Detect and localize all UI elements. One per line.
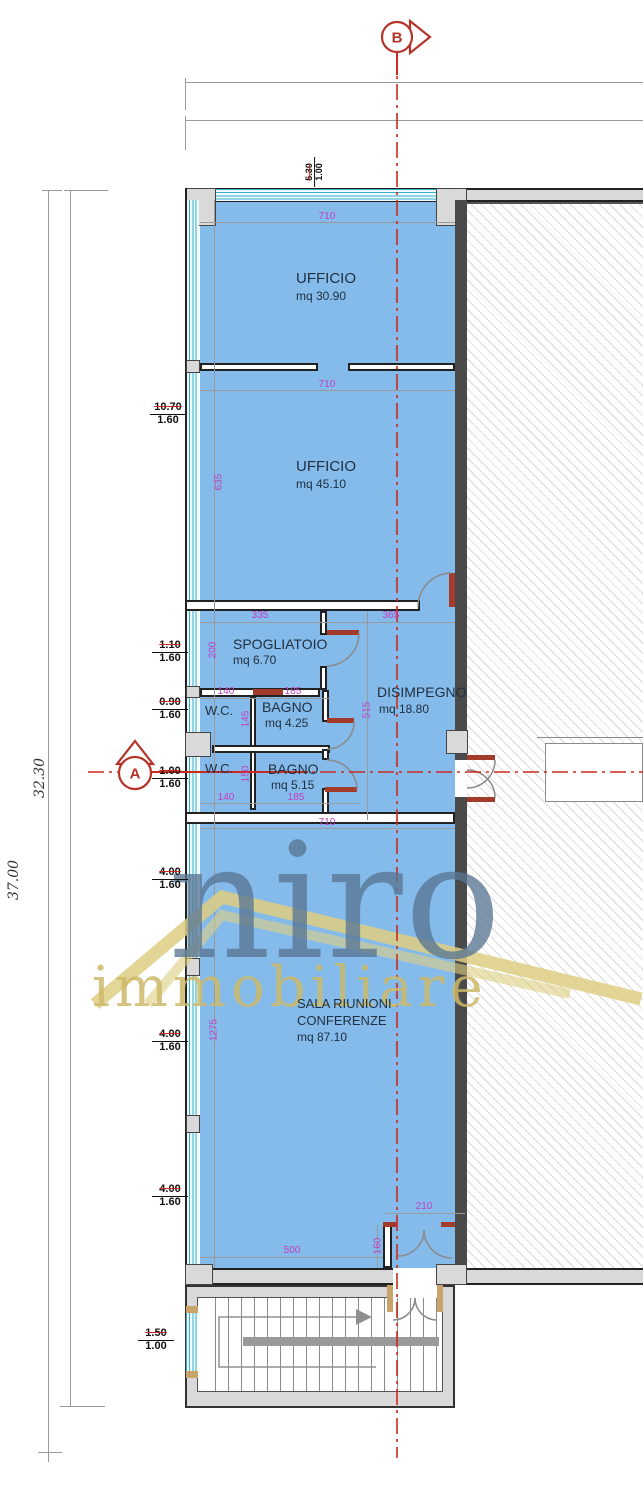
dim-140-b: 140 bbox=[218, 792, 235, 803]
door-arc-bagno2 bbox=[327, 760, 357, 790]
window-label-5-h: 1.60 bbox=[152, 879, 188, 892]
window-label-3-w: 0.90 bbox=[152, 697, 188, 709]
window-label-4: 1.00 1.60 bbox=[152, 766, 188, 790]
dim-160: 160 bbox=[373, 1238, 384, 1255]
window-label-5: 4.00 1.60 bbox=[152, 867, 188, 891]
marker-a-label: A bbox=[130, 766, 141, 783]
door-arc-vestibule-right bbox=[424, 1230, 452, 1258]
window-label-stair-h: 1.00 bbox=[138, 1340, 174, 1353]
room-sala-name1: SALA RIUNIONI bbox=[297, 996, 392, 1011]
window-label-4-w: 1.00 bbox=[152, 766, 188, 778]
room-ufficio1-area: mq 30.90 bbox=[296, 289, 346, 303]
window-label-2: 1.10 1.60 bbox=[152, 640, 188, 664]
window-label-4-h: 1.60 bbox=[152, 778, 188, 791]
room-bagno1-area: mq 4.25 bbox=[265, 716, 308, 730]
room-bagno1-name: BAGNO bbox=[262, 699, 313, 715]
window-label-3-h: 1.60 bbox=[152, 709, 188, 722]
dim-1275: 1275 bbox=[209, 1019, 220, 1041]
marker-b-label: B bbox=[392, 30, 403, 47]
dim-710-mid: 710 bbox=[319, 379, 336, 390]
overall-dim-total: 37.00 bbox=[6, 860, 22, 900]
dim-140-a: 140 bbox=[218, 686, 235, 697]
dim-185-b: 185 bbox=[288, 792, 305, 803]
window-label-7-h: 1.60 bbox=[152, 1196, 188, 1209]
dim-710-top: 710 bbox=[319, 211, 336, 222]
dim-710-bottom: 710 bbox=[319, 817, 336, 828]
window-label-6: 4.00 1.60 bbox=[152, 1029, 188, 1053]
door-arc-vestibule-left bbox=[398, 1230, 424, 1256]
window-label-5-w: 4.00 bbox=[152, 867, 188, 879]
section-lines bbox=[88, 52, 643, 1458]
dim-335: 335 bbox=[252, 610, 269, 621]
room-spogliatoio-area: mq 6.70 bbox=[233, 653, 276, 667]
room-ufficio2-name: UFFICIO bbox=[296, 458, 356, 475]
room-spogliatoio-name: SPOGLIATOIO bbox=[233, 636, 327, 652]
window-label-1-w: 10.70 bbox=[150, 402, 186, 414]
watermark-subtitle: immobiliare bbox=[92, 960, 488, 1016]
room-sala-name2: CONFERENZE bbox=[297, 1013, 387, 1028]
floor-plan: B A 37.00 32.30 niro immobiliare UFFICIO… bbox=[0, 0, 643, 1500]
window-label-top-h: 1.00 bbox=[315, 157, 325, 187]
dim-185-a: 185 bbox=[285, 686, 302, 697]
window-label-top-w: 5.30 bbox=[305, 157, 314, 187]
window-label-6-w: 4.00 bbox=[152, 1029, 188, 1041]
door-arc-bagno1 bbox=[327, 722, 354, 749]
window-label-stair: 1.50 1.00 bbox=[138, 1328, 174, 1352]
dim-200: 200 bbox=[208, 642, 219, 659]
room-bagno2-name: BAGNO bbox=[268, 761, 319, 777]
dim-145: 145 bbox=[241, 711, 252, 728]
door-arc-ufficio2 bbox=[418, 573, 451, 607]
room-disimpegno-name: DISIMPEGNO bbox=[377, 684, 466, 700]
room-ufficio2-area: mq 45.10 bbox=[296, 477, 346, 491]
window-label-7: 4.00 1.60 bbox=[152, 1184, 188, 1208]
section-marker-b bbox=[382, 21, 430, 53]
window-label-1-h: 1.60 bbox=[150, 414, 186, 427]
room-bagno2-area: mq 5.15 bbox=[271, 778, 314, 792]
dim-210: 210 bbox=[416, 1201, 433, 1212]
room-sala-area: mq 87.10 bbox=[297, 1030, 347, 1044]
stair-path bbox=[219, 1309, 376, 1367]
dim-515: 515 bbox=[362, 702, 373, 719]
room-disimpegno-area: mq 18.80 bbox=[379, 702, 429, 716]
window-label-2-h: 1.60 bbox=[152, 652, 188, 665]
room-ufficio1-name: UFFICIO bbox=[296, 270, 356, 287]
dim-500: 500 bbox=[284, 1245, 301, 1256]
window-label-stair-w: 1.50 bbox=[138, 1328, 174, 1340]
room-wc2-name: W.C. bbox=[205, 761, 233, 776]
overlay-graphics bbox=[0, 0, 643, 1500]
window-label-2-w: 1.10 bbox=[152, 640, 188, 652]
window-label-top: 5.30 1.00 bbox=[305, 157, 325, 187]
overall-dim-inner: 32.30 bbox=[32, 758, 48, 798]
dim-365: 365 bbox=[383, 610, 400, 621]
dim-635: 635 bbox=[214, 474, 225, 491]
dim-150: 150 bbox=[241, 766, 252, 783]
door-arc-spogliatoio bbox=[327, 633, 359, 666]
door-arc-stair-right bbox=[415, 1298, 437, 1320]
window-label-3: 0.90 1.60 bbox=[152, 697, 188, 721]
window-label-6-h: 1.60 bbox=[152, 1041, 188, 1054]
window-label-1: 10.70 1.60 bbox=[150, 402, 186, 426]
room-wc1-name: W.C. bbox=[205, 703, 233, 718]
window-label-7-w: 4.00 bbox=[152, 1184, 188, 1196]
